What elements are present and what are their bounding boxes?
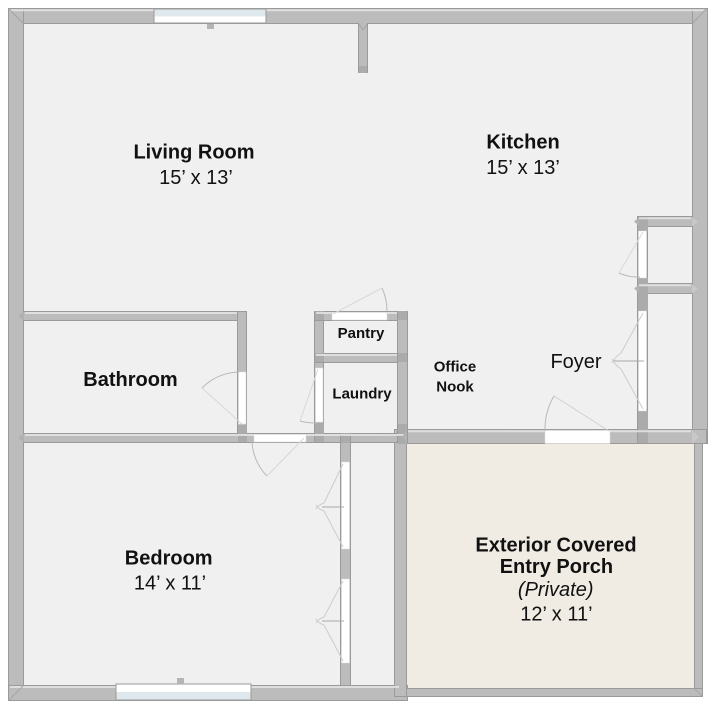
svg-text:12’ x 11’: 12’ x 11’: [520, 604, 592, 626]
svg-text:Pantry: Pantry: [338, 325, 385, 342]
svg-text:Laundry: Laundry: [332, 386, 392, 403]
svg-text:Foyer: Foyer: [550, 351, 601, 373]
svg-text:Exterior Covered: Exterior Covered: [475, 535, 636, 557]
svg-text:15’ x 13’: 15’ x 13’: [486, 157, 560, 179]
svg-text:14’ x 11’: 14’ x 11’: [134, 573, 206, 595]
svg-text:15’ x 13’: 15’ x 13’: [159, 167, 233, 189]
svg-text:Nook: Nook: [436, 379, 474, 396]
svg-text:Bedroom: Bedroom: [125, 548, 213, 570]
svg-text:Kitchen: Kitchen: [486, 132, 559, 154]
svg-text:Office: Office: [434, 359, 477, 376]
svg-text:Entry Porch: Entry Porch: [500, 556, 613, 578]
svg-text:(Private): (Private): [518, 579, 594, 601]
svg-text:Living Room: Living Room: [133, 142, 254, 164]
svg-text:Bathroom: Bathroom: [83, 369, 177, 391]
